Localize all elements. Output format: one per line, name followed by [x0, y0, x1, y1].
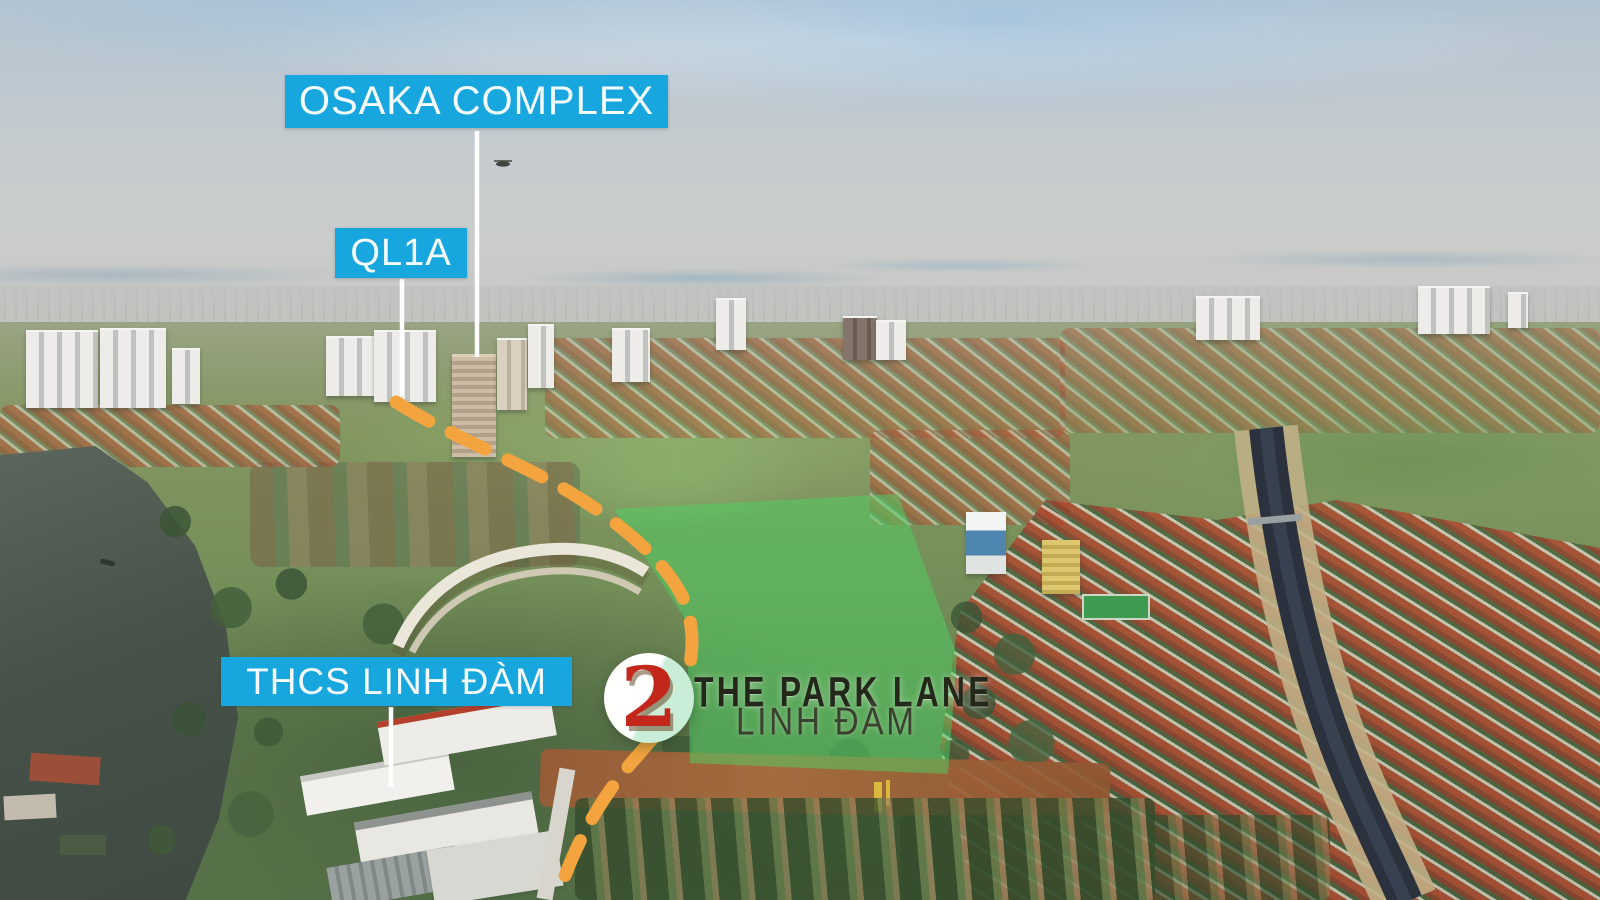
annotation-overlay	[0, 0, 1600, 900]
route-dashed-line	[396, 402, 692, 890]
aerial-photo: OSAKA COMPLEX QL1A THCS LINH ĐÀM 2 THE P…	[0, 0, 1600, 900]
canal-bridge	[1248, 517, 1302, 522]
label-ql1a: QL1A	[335, 228, 467, 278]
label-thcs-linh-dam: THCS LINH ĐÀM	[221, 657, 572, 706]
site-marker-number: 2	[620, 657, 677, 739]
helicopter-dot	[494, 161, 512, 167]
site-marker-badge: 2	[604, 653, 694, 743]
label-osaka-complex: OSAKA COMPLEX	[285, 75, 668, 128]
project-location: LINH ĐÀM	[736, 700, 917, 744]
